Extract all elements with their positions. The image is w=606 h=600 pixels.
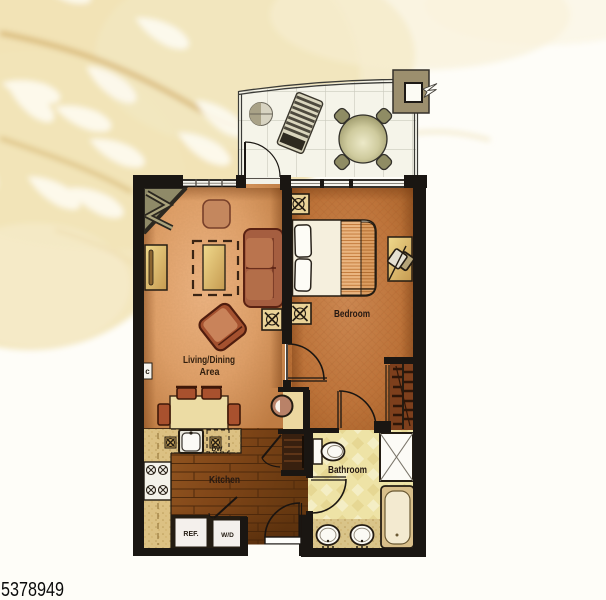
- svg-text:DW: DW: [212, 446, 224, 453]
- svg-text:Bathroom: Bathroom: [328, 465, 367, 476]
- svg-text:Living/Dining: Living/Dining: [183, 355, 235, 366]
- svg-text:REF.: REF.: [183, 531, 198, 538]
- svg-text:c: c: [145, 367, 150, 376]
- svg-text:Kitchen: Kitchen: [209, 474, 240, 486]
- svg-text:Bedroom: Bedroom: [334, 308, 370, 320]
- svg-text:W/D: W/D: [221, 532, 234, 539]
- svg-text:Area: Area: [200, 367, 220, 378]
- svg-text:5378949: 5378949: [1, 579, 64, 600]
